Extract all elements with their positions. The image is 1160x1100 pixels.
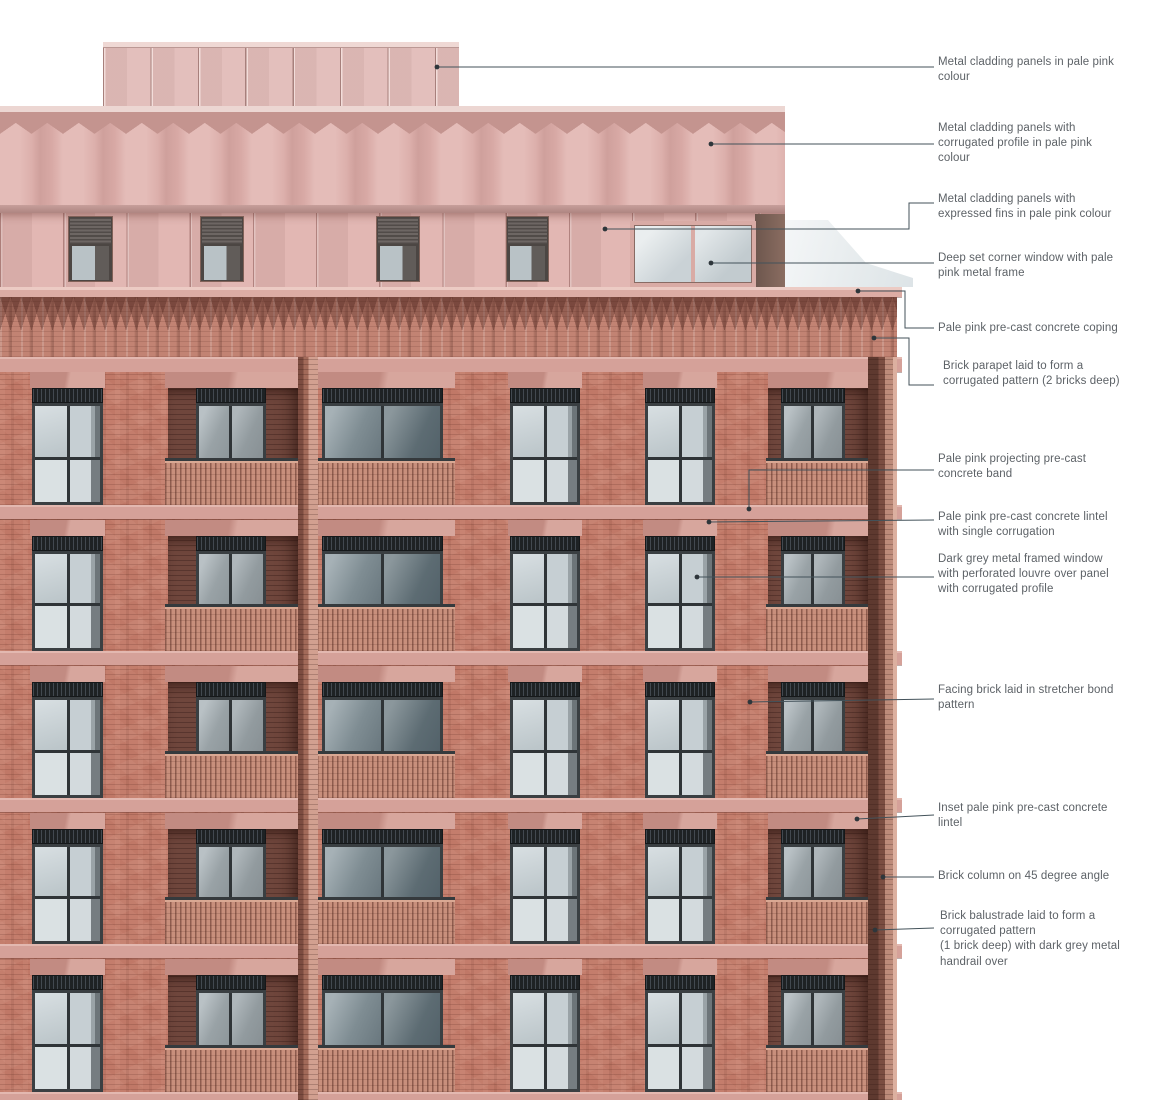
pane-lower-left xyxy=(513,899,544,941)
window-louvre-panel xyxy=(645,829,715,844)
window-louvre-panel xyxy=(32,975,103,990)
balcony-window xyxy=(781,990,845,1051)
pane-upper-right xyxy=(682,700,712,750)
corner-window-glass-left xyxy=(635,226,691,282)
projecting-concrete-band xyxy=(0,798,902,812)
pane-door-left xyxy=(199,554,229,607)
annotation-window-louvre: Dark grey metal framed windowwith perfor… xyxy=(938,552,1158,598)
precast-lintel xyxy=(643,813,717,829)
annotation-line: with corrugated profile xyxy=(938,582,1158,597)
elevation-drawing: Metal cladding panels in pale pinkcolour… xyxy=(0,0,1160,1100)
window-louvre-panel xyxy=(196,536,266,551)
window-louvre-panel xyxy=(781,682,845,697)
brick-balustrade xyxy=(312,754,455,798)
annotation-inset-lintel: Inset pale pink pre-cast concretelintel xyxy=(938,801,1158,831)
plain-window xyxy=(510,403,580,505)
pane-lower-left xyxy=(35,606,67,648)
pane-lower-right xyxy=(547,1047,577,1089)
pane-lower-left xyxy=(513,460,544,502)
annotation-line: Metal cladding panels in pale pink xyxy=(938,55,1158,70)
annotation-line: colour xyxy=(938,151,1158,166)
pane-door-left xyxy=(199,847,229,900)
precast-lintel xyxy=(30,372,105,388)
pane-door-right xyxy=(232,406,263,461)
pane-upper-right xyxy=(70,700,100,750)
precast-lintel xyxy=(30,666,105,682)
pane-lower-left xyxy=(648,460,679,502)
annotation-line: Inset pale pink pre-cast concrete xyxy=(938,801,1158,816)
window-louvre-panel xyxy=(32,388,103,403)
annotation-line: Facing brick laid in stretcher bond xyxy=(938,683,1158,698)
pane-upper-right xyxy=(70,406,100,457)
window-louvre-panel xyxy=(510,536,580,551)
pane-upper-left xyxy=(35,847,67,896)
pane-upper-left xyxy=(35,700,67,750)
clad-window-glass-3 xyxy=(510,246,545,280)
pane-lower-right xyxy=(70,753,100,795)
pane-upper-left xyxy=(513,700,544,750)
annotation-line: pattern xyxy=(938,698,1158,713)
annotation-line: with single corrugation xyxy=(938,525,1158,540)
projecting-concrete-band xyxy=(0,651,902,665)
window-louvre-panel xyxy=(196,975,266,990)
annotation-line: expressed fins in pale pink colour xyxy=(938,207,1158,222)
precast-lintel xyxy=(165,520,301,536)
window-louvre-panel xyxy=(196,388,266,403)
pane-lower-left xyxy=(35,899,67,941)
plain-window xyxy=(645,844,715,944)
annotation-line: Deep set corner window with pale xyxy=(938,251,1158,266)
precast-lintel xyxy=(508,813,582,829)
window-louvre-panel xyxy=(322,388,443,403)
pane-lower-left xyxy=(648,1047,679,1089)
window-louvre-panel xyxy=(32,829,103,844)
annotation-coping: Pale pink pre-cast concrete coping xyxy=(938,321,1158,336)
balcony-window xyxy=(781,697,845,757)
brick-balustrade xyxy=(165,607,298,651)
pane-door-left xyxy=(199,993,229,1048)
pane-door-right xyxy=(232,993,263,1048)
window-louvre-panel xyxy=(510,682,580,697)
balcony-window xyxy=(196,403,266,464)
annotation-line: corrugated pattern xyxy=(940,924,1160,939)
balcony-window xyxy=(196,697,266,757)
pane-upper-left xyxy=(648,554,679,603)
balcony-window xyxy=(196,990,266,1051)
brick-balustrade xyxy=(165,461,298,505)
pane-upper-right xyxy=(547,847,577,896)
annotation-concrete-band: Pale pink projecting pre-castconcrete ba… xyxy=(938,452,1158,482)
pane-upper-right xyxy=(682,554,712,603)
window-louvre-panel xyxy=(196,829,266,844)
pane-door-right xyxy=(232,847,263,900)
precast-lintel xyxy=(165,666,301,682)
pane-lower-right xyxy=(547,899,577,941)
precast-lintel xyxy=(508,520,582,536)
annotation-line: Metal cladding panels with xyxy=(938,121,1158,136)
brick-balustrade xyxy=(312,1048,455,1092)
window-louvre-panel xyxy=(322,536,443,551)
annotation-line: corrugated profile in pale pink xyxy=(938,136,1158,151)
annotation-line: lintel xyxy=(938,816,1158,831)
projecting-concrete-band xyxy=(0,1092,902,1100)
window-louvre-panel xyxy=(510,829,580,844)
clad-window-glass-1 xyxy=(204,246,240,280)
pane-upper-right xyxy=(547,993,577,1044)
brick-column-45deg xyxy=(298,357,318,1100)
pane-door-left xyxy=(784,406,811,461)
pane-upper-right xyxy=(682,406,712,457)
penthouse-cladding-cap xyxy=(103,42,459,48)
window-louvre-panel xyxy=(32,682,103,697)
pane-upper-right xyxy=(70,847,100,896)
pane-upper-left xyxy=(648,993,679,1044)
pane-lower-left xyxy=(35,753,67,795)
annotation-cladding-fins: Metal cladding panels withexpressed fins… xyxy=(938,192,1158,222)
balcony-window xyxy=(196,844,266,903)
balcony-window xyxy=(781,844,845,903)
pane-upper-right xyxy=(547,700,577,750)
precast-lintel xyxy=(508,372,582,388)
pane-lower-right xyxy=(682,899,712,941)
balcony-window xyxy=(781,403,845,464)
pane-lower-left xyxy=(513,606,544,648)
plain-window xyxy=(510,697,580,798)
plain-window xyxy=(645,697,715,798)
pane-door-right xyxy=(232,700,263,754)
annotation-line: (1 brick deep) with dark grey metal xyxy=(940,939,1160,954)
pane-door-right xyxy=(814,847,842,900)
annotation-facing-brick: Facing brick laid in stretcher bondpatte… xyxy=(938,683,1158,713)
pane-upper-left xyxy=(648,700,679,750)
clad-window-glass-0 xyxy=(72,246,109,280)
pane-lower-right xyxy=(682,753,712,795)
balcony-window xyxy=(781,551,845,610)
pane-lower-left xyxy=(35,1047,67,1089)
annotation-parapet: Brick parapet laid to form acorrugated p… xyxy=(943,359,1160,389)
plain-window xyxy=(510,844,580,944)
pane-door-left xyxy=(199,406,229,461)
plain-window xyxy=(510,551,580,651)
plain-window xyxy=(645,551,715,651)
corrugated-cladding-band xyxy=(0,106,785,207)
pane-door-right xyxy=(814,993,842,1048)
window-louvre-panel xyxy=(781,388,845,403)
brick-balustrade xyxy=(165,754,298,798)
clad-window-louvre-2 xyxy=(378,218,418,244)
precast-lintel xyxy=(165,959,301,975)
pane-lower-right xyxy=(547,460,577,502)
plain-window xyxy=(645,990,715,1092)
projecting-concrete-band xyxy=(0,505,902,519)
pane-upper-left xyxy=(35,554,67,603)
pane-upper-left xyxy=(513,993,544,1044)
annotation-line: concrete band xyxy=(938,467,1158,482)
pane-lower-left xyxy=(648,899,679,941)
precast-lintel xyxy=(312,813,455,829)
projecting-concrete-band xyxy=(0,944,902,958)
pane-door-left xyxy=(784,847,811,900)
precast-lintel xyxy=(508,959,582,975)
precast-lintel xyxy=(30,520,105,536)
brick-balustrade xyxy=(312,900,455,944)
window-louvre-panel xyxy=(781,536,845,551)
window-louvre-panel xyxy=(322,975,443,990)
precast-lintel xyxy=(30,813,105,829)
pane-upper-right xyxy=(682,993,712,1044)
pane-door-right xyxy=(814,406,842,461)
plain-window xyxy=(32,844,103,944)
pane-lower-right xyxy=(682,606,712,648)
parapet-band xyxy=(0,357,902,372)
window-louvre-panel xyxy=(510,388,580,403)
pane-upper-right xyxy=(70,993,100,1044)
plain-window xyxy=(645,403,715,505)
annotation-line: Dark grey metal framed window xyxy=(938,552,1158,567)
window-louvre-panel xyxy=(781,975,845,990)
precast-lintel xyxy=(312,666,455,682)
plain-window xyxy=(32,990,103,1092)
window-louvre-panel xyxy=(322,829,443,844)
pane-lower-left xyxy=(513,1047,544,1089)
precast-lintel xyxy=(643,666,717,682)
precast-lintel xyxy=(312,520,455,536)
pane-lower-left xyxy=(35,460,67,502)
annotation-line: Pale pink pre-cast concrete coping xyxy=(938,321,1158,336)
brick-column-45deg xyxy=(868,357,893,1100)
clad-window-glass-2 xyxy=(380,246,416,280)
pane-upper-left xyxy=(35,993,67,1044)
plain-window xyxy=(510,990,580,1092)
pane-lower-left xyxy=(648,753,679,795)
pane-lower-right xyxy=(682,1047,712,1089)
pane-lower-left xyxy=(648,606,679,648)
annotation-cladding-corrugated: Metal cladding panels withcorrugated pro… xyxy=(938,121,1158,167)
annotation-line: with perforated louvre over panel xyxy=(938,567,1158,582)
brick-balustrade xyxy=(165,1048,298,1092)
pane-lower-right xyxy=(547,606,577,648)
annotation-cladding-plain: Metal cladding panels in pale pinkcolour xyxy=(938,55,1158,85)
annotation-line: Brick balustrade laid to form a xyxy=(940,909,1160,924)
pane-lower-right xyxy=(70,460,100,502)
clad-window-louvre-1 xyxy=(202,218,242,244)
pane-door-right xyxy=(814,554,842,607)
precast-lintel xyxy=(643,959,717,975)
facade-right-edge xyxy=(893,357,897,1100)
annotation-corner-window: Deep set corner window with palepink met… xyxy=(938,251,1158,281)
plain-window xyxy=(32,551,103,651)
pane-upper-right xyxy=(547,406,577,457)
pane-door-left xyxy=(784,993,811,1048)
brick-parapet-corrugated xyxy=(0,297,897,357)
annotation-line: pink metal frame xyxy=(938,266,1158,281)
precast-lintel xyxy=(643,372,717,388)
annotation-line: Pale pink pre-cast concrete lintel xyxy=(938,510,1158,525)
precast-lintel xyxy=(312,372,455,388)
pane-lower-left xyxy=(513,753,544,795)
precast-lintel xyxy=(165,372,301,388)
window-louvre-panel xyxy=(781,829,845,844)
window-louvre-panel xyxy=(322,682,443,697)
pane-lower-right xyxy=(547,753,577,795)
pane-upper-left xyxy=(513,554,544,603)
brick-balustrade xyxy=(312,607,455,651)
plain-window xyxy=(32,403,103,505)
precast-lintel xyxy=(643,520,717,536)
pane-door-left xyxy=(784,700,811,754)
pane-upper-right xyxy=(682,847,712,896)
pane-lower-right xyxy=(70,899,100,941)
window-louvre-panel xyxy=(645,388,715,403)
corner-window xyxy=(630,221,756,287)
balcony-window xyxy=(196,551,266,610)
corner-window-glass-right xyxy=(695,226,751,282)
precast-lintel xyxy=(165,813,301,829)
corner-window-shadow xyxy=(755,214,785,287)
clad-window-louvre-3 xyxy=(508,218,547,244)
window-louvre-panel xyxy=(196,682,266,697)
pane-upper-right xyxy=(547,554,577,603)
annotation-line: Metal cladding panels with xyxy=(938,192,1158,207)
pane-door-right xyxy=(232,554,263,607)
pane-door-right xyxy=(814,700,842,754)
annotation-line: Brick parapet laid to form a xyxy=(943,359,1160,374)
pane-upper-right xyxy=(70,554,100,603)
pane-door-left xyxy=(199,700,229,754)
annotation-line: corrugated pattern (2 bricks deep) xyxy=(943,374,1160,389)
clad-window-louvre-0 xyxy=(70,218,111,244)
annotation-brick-column: Brick column on 45 degree angle xyxy=(938,869,1158,884)
pane-lower-right xyxy=(682,460,712,502)
pane-lower-right xyxy=(70,1047,100,1089)
rooftop-glazing-volume xyxy=(783,214,913,287)
pane-upper-left xyxy=(648,406,679,457)
precast-coping xyxy=(0,287,902,297)
pane-door-left xyxy=(784,554,811,607)
brick-balustrade xyxy=(165,900,298,944)
pane-lower-right xyxy=(70,606,100,648)
window-louvre-panel xyxy=(645,536,715,551)
window-louvre-panel xyxy=(645,975,715,990)
plain-window xyxy=(32,697,103,798)
precast-lintel xyxy=(508,666,582,682)
pane-upper-left xyxy=(513,847,544,896)
window-louvre-panel xyxy=(32,536,103,551)
precast-lintel xyxy=(312,959,455,975)
pane-upper-left xyxy=(35,406,67,457)
window-louvre-panel xyxy=(510,975,580,990)
annotation-lintel-corrugation: Pale pink pre-cast concrete lintelwith s… xyxy=(938,510,1158,540)
annotation-line: Brick column on 45 degree angle xyxy=(938,869,1158,884)
pane-upper-left xyxy=(648,847,679,896)
annotation-line: Pale pink projecting pre-cast xyxy=(938,452,1158,467)
annotation-line: handrail over xyxy=(940,955,1160,970)
annotation-balustrade: Brick balustrade laid to form acorrugate… xyxy=(940,909,1160,970)
window-louvre-panel xyxy=(645,682,715,697)
pane-upper-left xyxy=(513,406,544,457)
annotation-line: colour xyxy=(938,70,1158,85)
precast-lintel xyxy=(30,959,105,975)
brick-balustrade xyxy=(312,461,455,505)
